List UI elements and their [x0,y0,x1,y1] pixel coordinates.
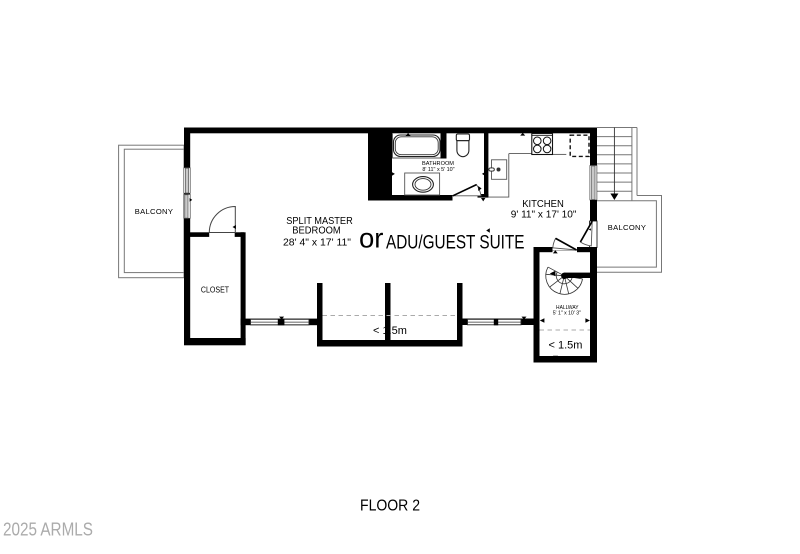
svg-text:< 1.5m: < 1.5m [373,325,407,337]
svg-text:2025 ARMLS: 2025 ARMLS [3,520,93,540]
svg-text:CLOSET: CLOSET [201,286,229,295]
svg-text:28' 4" x 17' 11": 28' 4" x 17' 11" [283,238,351,249]
svg-text:BALCONY: BALCONY [135,207,173,216]
svg-text:BEDROOM: BEDROOM [292,226,341,237]
svg-text:8' 11" x 5' 10": 8' 11" x 5' 10" [422,167,454,173]
svg-text:ADU/GUEST SUITE: ADU/GUEST SUITE [386,233,525,254]
svg-text:9' 11" x 17' 10": 9' 11" x 17' 10" [511,209,577,221]
svg-text:BALCONY: BALCONY [608,223,646,232]
svg-text:or: or [359,222,383,253]
svg-text:< 1.5m: < 1.5m [549,340,583,352]
svg-text:5' 1" x 10' 3": 5' 1" x 10' 3" [553,310,581,316]
svg-text:FLOOR 2: FLOOR 2 [360,498,420,515]
